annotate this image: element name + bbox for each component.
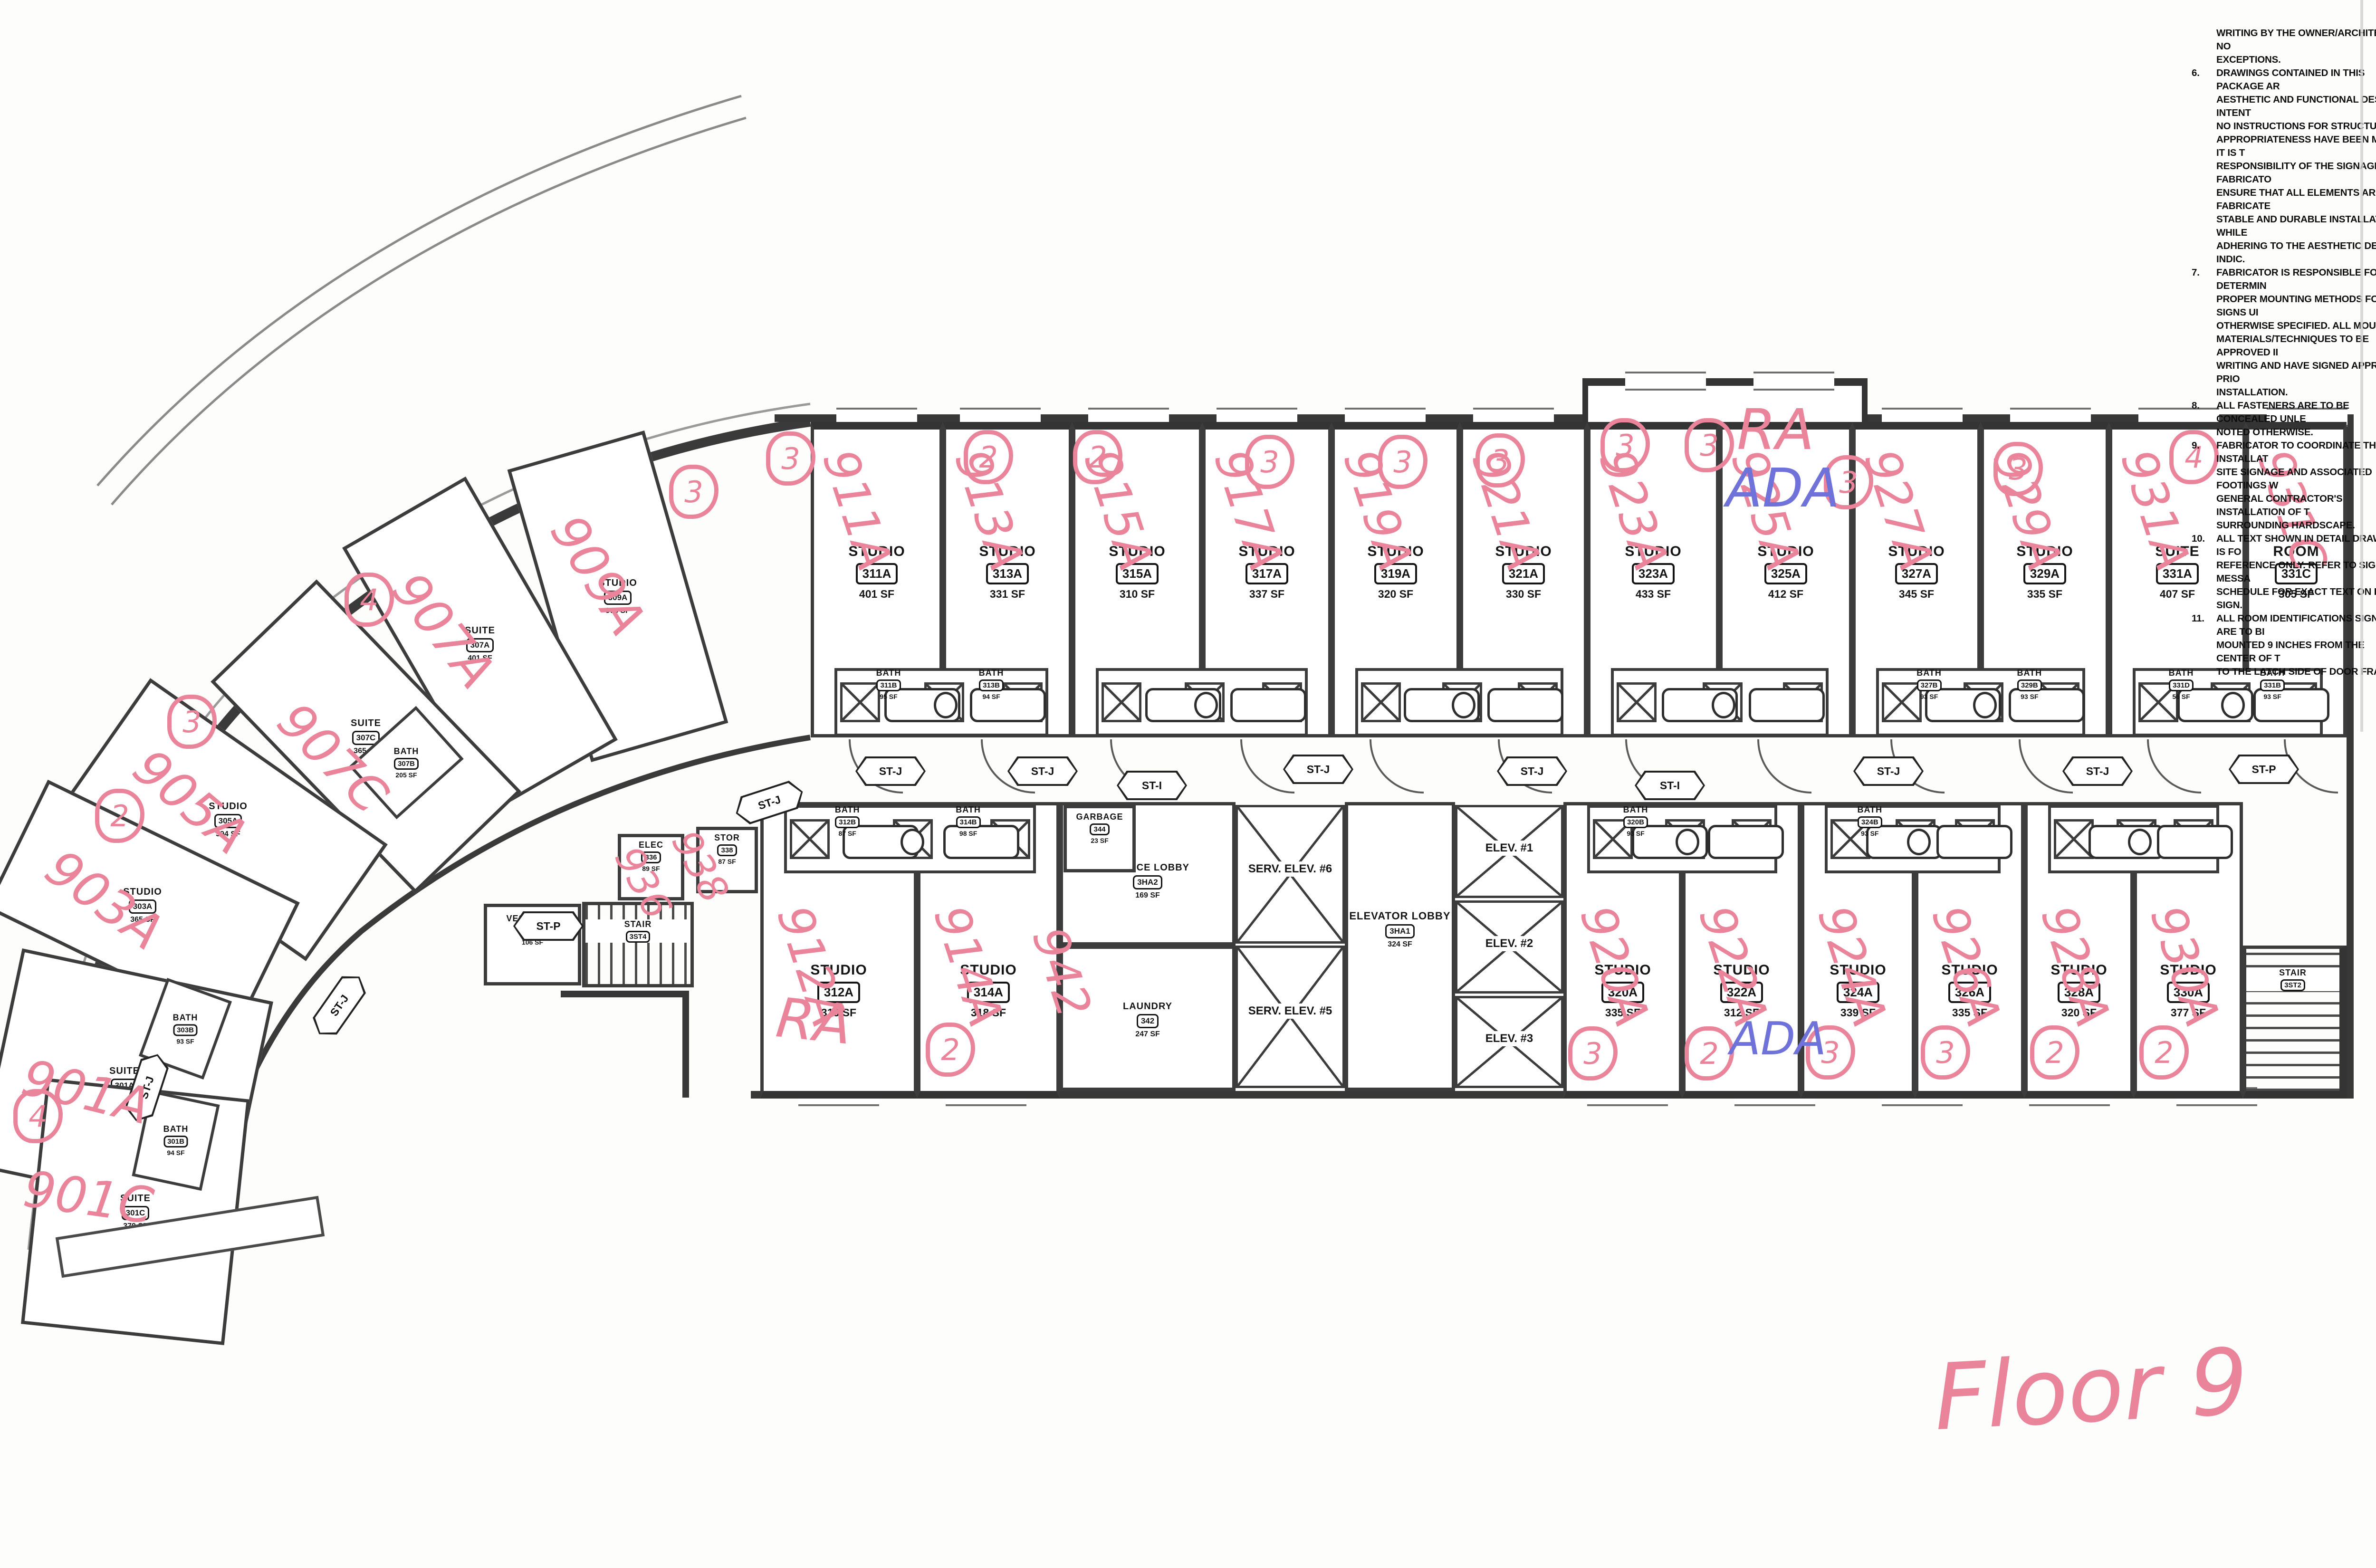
room-tag: GARBAGE34423 SF (1067, 812, 1132, 844)
scan-fold-streak (2360, 0, 2363, 732)
elevator-label: ELEV. #2 (1483, 936, 1536, 951)
bath-area-label: 98 SF (926, 830, 1011, 837)
bath-tag: BATH312B87 SF (805, 805, 890, 837)
note-line: DRAWINGS CONTAINED IN THIS PACKAGE AR (2216, 67, 2376, 93)
note-number: 8. (2192, 399, 2216, 439)
bath-number-tag: 313B (979, 679, 1004, 691)
closet-shaft (1361, 682, 1401, 722)
note-line: STABLE AND DURABLE INSTALLATION WHILE (2216, 213, 2376, 239)
room-area-label: 412 SF (1723, 588, 1849, 601)
room-tag: STAIR3ST4 (585, 919, 690, 943)
note-line: ALL FASTENERS ARE TO BE CONCEALED UNLE (2216, 399, 2376, 426)
elevator: ELEV. #1 (1455, 805, 1563, 898)
note-number (2192, 27, 2216, 53)
floor-level-annotation: Floor 9 (1932, 1337, 2250, 1444)
bath-strip (1355, 668, 1563, 736)
bath-label: BATH (805, 805, 890, 815)
toilet (1712, 692, 1735, 718)
room-area-label: 310 SF (1075, 588, 1199, 601)
elevator-label: ELEV. #1 (1483, 841, 1536, 856)
room-area-label: 337 SF (1206, 588, 1328, 601)
note-line: WRITING BY THE OWNER/ARCHITECT. NO (2216, 27, 2376, 53)
general-notes-block: WRITING BY THE OWNER/ARCHITECT. NOEXCEPT… (2192, 27, 2376, 679)
bath-tag: BATH311B95 SF (846, 668, 931, 700)
bath-strip (2048, 805, 2219, 873)
bathtub (2157, 825, 2233, 859)
bath-number-tag: 303B (173, 1024, 198, 1036)
elevator-label: ELEV. #3 (1483, 1031, 1536, 1046)
bath-area-label: 93 SF (173, 1037, 198, 1045)
note-number: 10. (2192, 532, 2216, 612)
handwritten-ada-925: ADA (1726, 462, 1839, 515)
toilet (2128, 829, 2152, 855)
bath-tag: BATH303B93 SF (173, 1013, 198, 1045)
elevator-label: SERV. ELEV. #6 (1245, 861, 1335, 877)
room-number-tag: 342 (1137, 1014, 1159, 1028)
room-area-label: 335 SF (1984, 588, 2106, 601)
bath-strip: BATH320B93 SF (1587, 805, 1777, 873)
bath-label: BATH (1887, 668, 1972, 678)
bath-strip: BATH312B87 SFBATH314B98 SF (784, 805, 1036, 873)
window (1753, 372, 1834, 391)
bath-area-label: 95 SF (846, 693, 931, 700)
room-type-label: GARBAGE (1067, 812, 1132, 822)
bath-area-label: 93 SF (1887, 693, 1972, 700)
bathtub (1230, 688, 1306, 722)
bath-tag: BATH329B93 SF (1987, 668, 2072, 700)
bath-area-label: 94 SF (948, 693, 1034, 700)
bathtub (1936, 825, 2012, 859)
room-number-tag: 3HA2 (1133, 875, 1162, 889)
handwritten-ra-912: RA (774, 991, 854, 1053)
note-number (2192, 53, 2216, 67)
room-area-label: 330 SF (1463, 588, 1584, 601)
note-line: AESTHETIC AND FUNCTIONAL DESIGN INTENT (2216, 93, 2376, 120)
elevator-lobby: ELEVATOR LOBBY3HA1324 SF (1345, 802, 1455, 1091)
room-tag: ELEVATOR LOBBY3HA1324 SF (1348, 910, 1452, 949)
sign-tag-label: ST-J (1007, 756, 1078, 786)
note-number: 6. (2192, 67, 2216, 266)
bathtub (2089, 825, 2165, 859)
bath-area-label: 93 SF (1827, 830, 1913, 837)
bath-tag: BATH313B94 SF (948, 668, 1034, 700)
bathtub (1749, 688, 1825, 722)
stair-3st2: STAIR3ST2 (2243, 946, 2347, 1099)
note-line: ADHERING TO THE AESTHETIC DETAILS INDIC. (2216, 239, 2376, 266)
note-line: EXCEPTIONS. (2216, 53, 2281, 67)
bath-tag: BATH324B93 SF (1827, 805, 1913, 837)
bath-strip: BATH324B93 SF (1825, 805, 2001, 873)
bathtub (1708, 825, 1784, 859)
bathtub (1487, 688, 1563, 722)
bath-area-label: 205 SF (394, 771, 419, 779)
bath-label: BATH (1593, 805, 1678, 815)
sign-tag-label: ST-I (1635, 771, 1705, 800)
sign-tag-ST-J: ST-J (2062, 756, 2133, 786)
bath-tag: BATH320B93 SF (1593, 805, 1678, 837)
elevator: ELEV. #2 (1455, 900, 1563, 994)
note-number: 11. (2192, 612, 2216, 679)
note-line: OTHERWISE SPECIFIED. ALL MOUNTING (2216, 319, 2376, 333)
room-area-label: 169 SF (1063, 891, 1232, 900)
bath-strip (1611, 668, 1829, 736)
room-type-label: STAIR (2246, 968, 2339, 978)
note-line: TO THE LATCH SIDE OF DOOR FRAME. (2216, 665, 2376, 679)
room-number-tag: 3ST2 (2280, 979, 2305, 991)
room-area-label: 345 SF (1856, 588, 1977, 601)
bath-number-tag: 331D (2169, 679, 2194, 691)
note-line: ALL TEXT SHOWN IN DETAIL DRAWINGS IS FO (2216, 532, 2376, 559)
handwritten-ra-925: RA (1737, 402, 1814, 458)
note-number: 9. (2192, 439, 2216, 532)
room-type-label: SUITE (351, 718, 381, 729)
service-elevator: SERV. ELEV. #5 (1236, 946, 1345, 1088)
bath-tag: BATH327B93 SF (1887, 668, 1972, 700)
service-elevator: SERV. ELEV. #6 (1236, 805, 1345, 944)
note-line: MOUNTED 9 INCHES FROM THE CENTER OF T (2216, 639, 2376, 665)
sign-tag-label: ST-J (2062, 756, 2133, 786)
bath-area-label: 94 SF (163, 1149, 189, 1157)
note-line: INSTALLATION. (2216, 386, 2376, 399)
scanned-floor-plan: STUDIO311A401 SFSTUDIO313A331 SFSTUDIO31… (0, 0, 2376, 1568)
room-area-label: 23 SF (1067, 837, 1132, 844)
toilet (1452, 692, 1475, 718)
closet-shaft (1617, 682, 1657, 722)
bath-number-tag: 320B (1623, 816, 1648, 828)
bath-strip: BATH311B95 SFBATH313B94 SF (834, 668, 1048, 736)
bath-number-tag: 314B (956, 816, 981, 828)
note-line: ENSURE THAT ALL ELEMENTS ARE FABRICATE (2216, 186, 2376, 213)
toilet (1676, 829, 1699, 855)
bath-label: BATH (1827, 805, 1913, 815)
sign-tag-label: ST-P (2229, 755, 2299, 784)
note-number: 7. (2192, 266, 2216, 399)
bath-strip: BATH327B93 SFBATH329B93 SF (1876, 668, 2085, 736)
room-area-label: 331 SF (946, 588, 1069, 601)
room-tag: STAIR3ST2 (2246, 968, 2339, 991)
bath-label: BATH (948, 668, 1034, 678)
sign-tag-label: ST-I (1117, 771, 1187, 800)
bath-tag: BATH301B94 SF (163, 1124, 189, 1157)
bath-number-tag: 312B (835, 816, 860, 828)
sign-tag-label: ST-J (1283, 755, 1353, 784)
bath-area-label: 93 SF (1987, 693, 2072, 700)
note-line: WRITING AND HAVE SIGNED APPROVAL PRIO (2216, 359, 2376, 386)
bath-number-tag: 331B (2260, 679, 2285, 691)
bath-number-tag: 307B (394, 758, 419, 770)
bath-label: BATH (846, 668, 931, 678)
room-number-tag: 3HA1 (1385, 924, 1414, 938)
note-line: SITE SIGNAGE AND ASSOCIATED FOOTINGS W (2216, 466, 2376, 492)
room-type-label: ELEVATOR LOBBY (1348, 910, 1452, 922)
room-area-label: 401 SF (814, 588, 939, 601)
bath-label: BATH (173, 1013, 198, 1023)
step-wall-v (682, 991, 689, 1098)
sign-tag-ST-P: ST-P (2229, 755, 2299, 784)
closet-shaft (1102, 682, 1141, 722)
window (1625, 372, 1706, 391)
sign-tag-ST-P: ST-P (513, 911, 584, 941)
room-area-label: 324 SF (1348, 940, 1452, 949)
sign-tag-ST-J: ST-J (1497, 756, 1567, 786)
bath-tag-holder: BATH303B93 SF (147, 997, 224, 1061)
bath-number-tag: 311B (876, 679, 901, 691)
note-line: MATERIALS/TECHNIQUES TO BE APPROVED II (2216, 333, 2376, 359)
bath-area-label: 87 SF (805, 830, 890, 837)
note-line: PROPER MOUNTING METHODS FOR SIGNS UI (2216, 293, 2376, 319)
bath-number-tag: 324B (1858, 816, 1882, 828)
bath-area-label: 56 SF (2138, 693, 2224, 700)
toilet (901, 829, 924, 855)
sign-tag-label: ST-J (1497, 756, 1567, 786)
note-line: NOTED OTHERWISE. (2216, 426, 2376, 439)
bath-label: BATH (163, 1124, 189, 1134)
room-area-label: 247 SF (1063, 1030, 1232, 1039)
handwritten-ada-922: ADA (1730, 1017, 1826, 1062)
note-line: GENERAL CONTRACTOR'S INSTALLATION OF T (2216, 492, 2376, 519)
bath-tag: BATH314B98 SF (926, 805, 1011, 837)
room-area-label: 320 SF (1335, 588, 1456, 601)
sign-tag-ST-J: ST-J (855, 756, 926, 786)
sign-tag-ST-J: ST-J (1853, 756, 1924, 786)
note-line: ALL ROOM IDENTIFICATIONS SIGNS ARE TO BI (2216, 612, 2376, 639)
note-line: RESPONSIBILITY OF THE SIGNAGE FABRICATO (2216, 160, 2376, 186)
step-wall-h (561, 991, 689, 997)
note-line: REFERENCE ONLY. REFER TO SIGNAGE MESSA (2216, 559, 2376, 585)
note-line: NO INSTRUCTIONS FOR STRUCTURAL (2216, 120, 2376, 133)
sign-tag-label: ST-J (1853, 756, 1924, 786)
note-line: FABRICATOR TO COORDINATE THE INSTALLAT (2216, 439, 2376, 466)
bath-label: BATH (926, 805, 1011, 815)
bath-tag: BATH307B205 SF (394, 746, 419, 779)
sign-tag-label: ST-P (513, 911, 584, 941)
garbage-room: GARBAGE34423 SF (1063, 805, 1136, 872)
sign-tag-ST-J: ST-J (1283, 755, 1353, 784)
bath-label: BATH (1987, 668, 2072, 678)
bath-number-tag: 301B (163, 1136, 188, 1147)
bath-number-tag: 327B (1917, 679, 1942, 691)
elevator: ELEV. #3 (1455, 996, 1563, 1088)
sign-tag-label: ST-J (855, 756, 926, 786)
elevator-label: SERV. ELEV. #5 (1245, 1004, 1335, 1019)
bath-label: BATH (394, 746, 419, 756)
toilet (1194, 692, 1218, 718)
room-number-tag: 344 (1090, 823, 1109, 835)
bath-strip (1096, 668, 1308, 736)
sign-tag-ST-I: ST-I (1635, 771, 1705, 800)
bath-number-tag: 329B (2017, 679, 2042, 691)
bath-area-label: 93 SF (1593, 830, 1678, 837)
room-number-tag: 338 (717, 844, 737, 856)
note-line: SCHEDULE FOR EXACT TEXT ON EACH SIGN. (2216, 585, 2376, 612)
note-line: FABRICATOR IS RESPONSIBLE FOR DETERMIN (2216, 266, 2376, 293)
note-line: SURROUNDING HARDSCAPE. (2216, 519, 2376, 532)
room-area-label: 433 SF (1590, 588, 1716, 601)
closet-shaft (2054, 819, 2094, 859)
sign-tag-ST-J: ST-J (1007, 756, 1078, 786)
sign-tag-ST-I: ST-I (1117, 771, 1187, 800)
room-number-tag: 3ST4 (626, 931, 651, 943)
bath-area-label: 93 SF (2230, 693, 2315, 700)
note-line: APPROPRIATENESS HAVE BEEN MADE. IT IS T (2216, 133, 2376, 160)
